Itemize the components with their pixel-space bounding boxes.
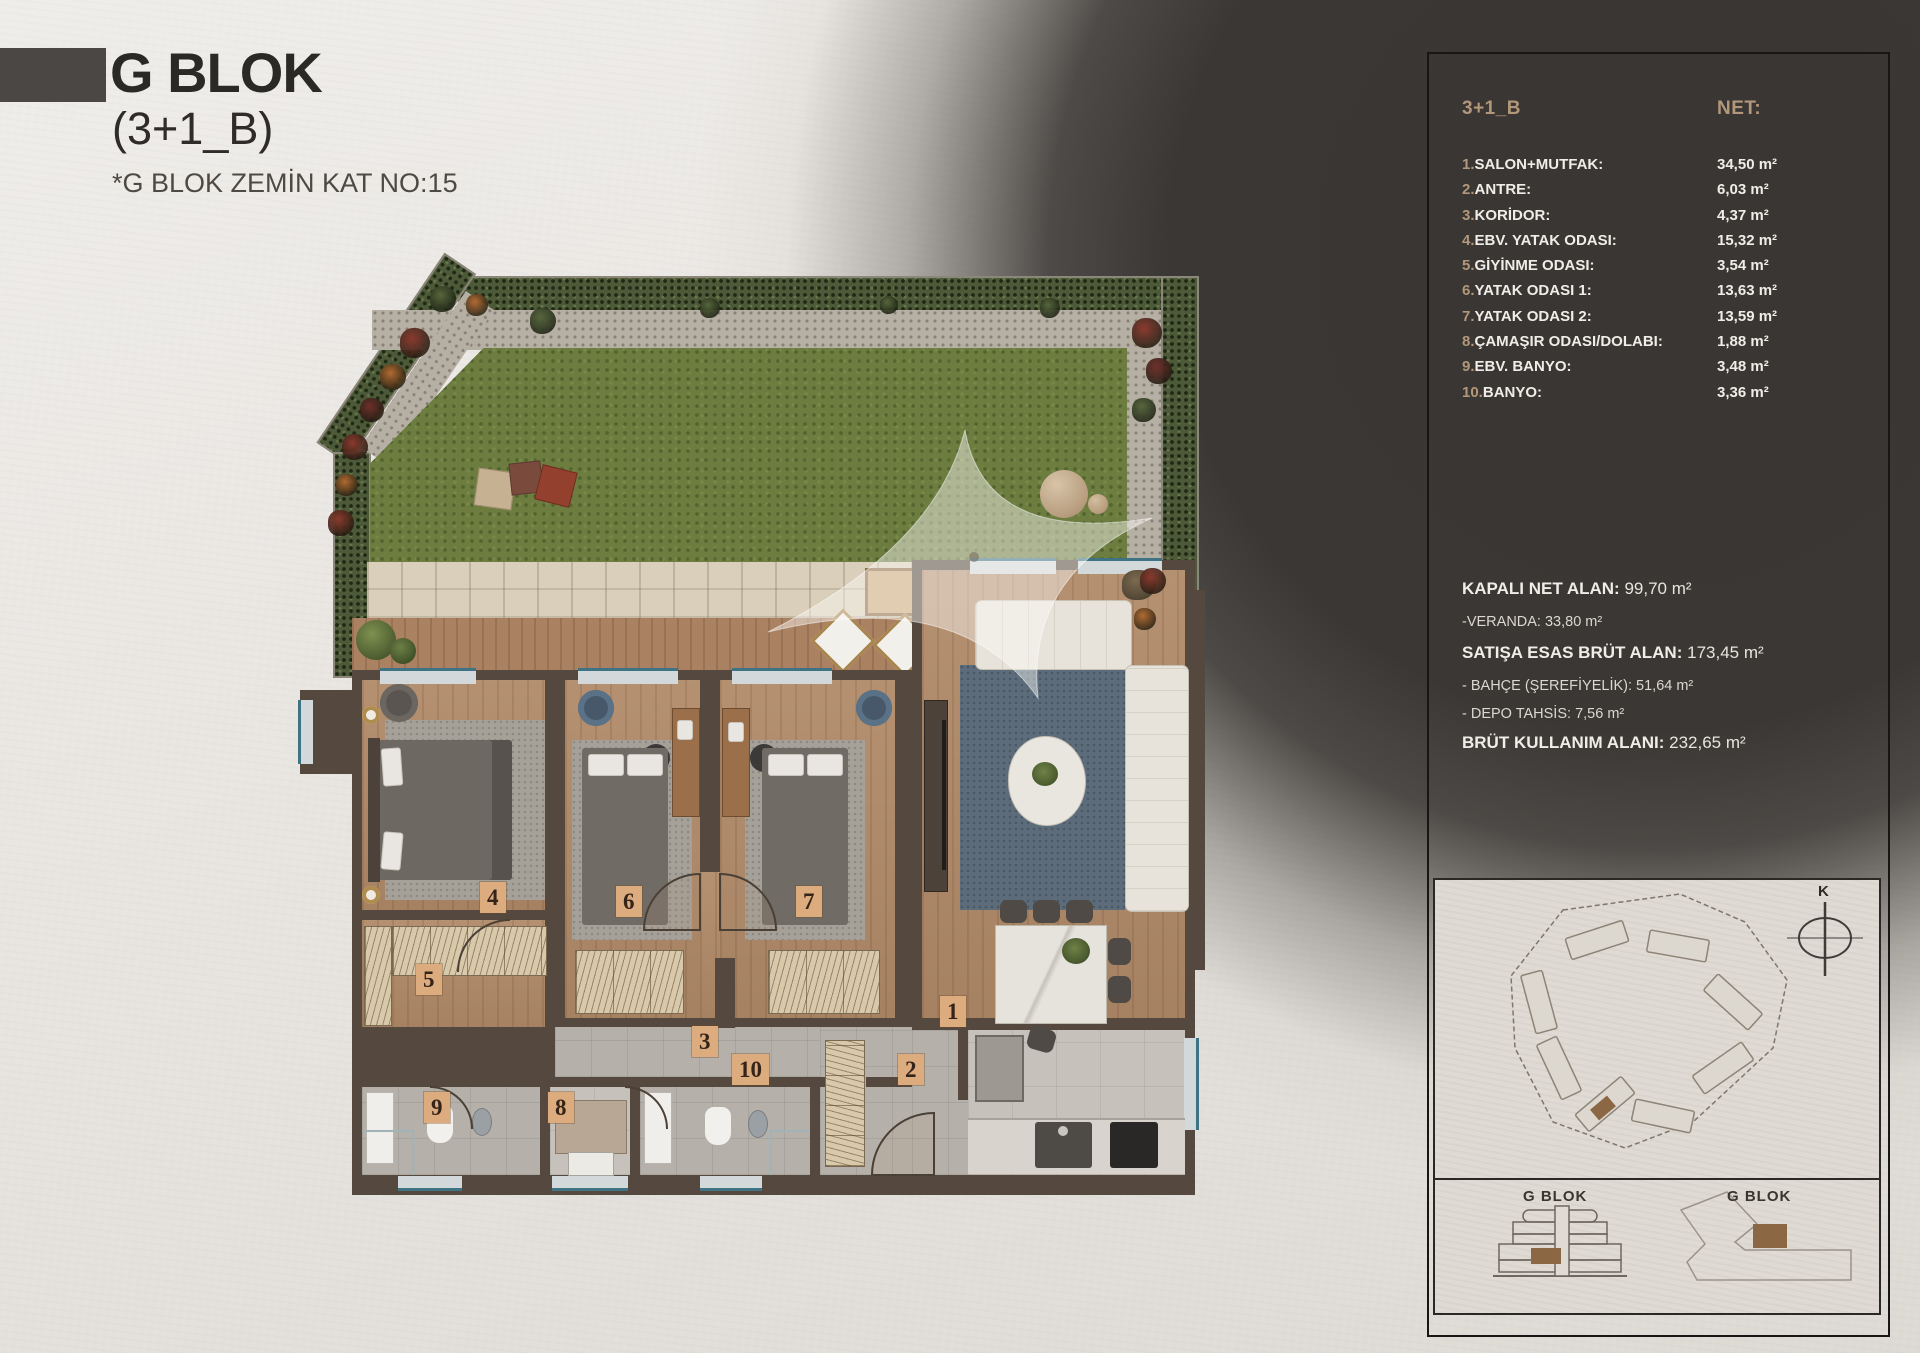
room-label: 2.ANTRE: bbox=[1462, 181, 1717, 206]
flower-blob bbox=[1134, 608, 1156, 630]
footprint-unit-marker bbox=[1753, 1224, 1787, 1248]
compass-north-label: K bbox=[1818, 883, 1829, 900]
room-number-chip: 5 bbox=[416, 964, 442, 995]
flower-blob bbox=[342, 434, 368, 460]
floor-plan: 46753121089 bbox=[280, 270, 1205, 1205]
elevation-diagram bbox=[1493, 1206, 1627, 1276]
floor-note: *G BLOK ZEMİN KAT NO:15 bbox=[112, 168, 458, 199]
room-area-row: 5.GİYİNME ODASI:3,54 m² bbox=[1462, 257, 1864, 282]
room-value: 1,88 m² bbox=[1717, 333, 1864, 358]
room-value: 15,32 m² bbox=[1717, 232, 1864, 257]
door-arcs bbox=[430, 874, 934, 1175]
plan-type-subtitle: (3+1_B) bbox=[112, 103, 273, 155]
compass-icon bbox=[1787, 902, 1863, 976]
flower-blob bbox=[336, 474, 358, 496]
room-area-row: 8.ÇAMAŞIR ODASI/DOLABI:1,88 m² bbox=[1462, 333, 1864, 358]
room-number-chip: 2 bbox=[898, 1054, 924, 1085]
summary-line: - DEPO TAHSİS: 7,56 m² bbox=[1462, 706, 1624, 722]
flower-blob bbox=[360, 398, 384, 422]
room-area-row: 10.BANYO:3,36 m² bbox=[1462, 384, 1864, 409]
block-diagrams-svg bbox=[1435, 1180, 1879, 1311]
flower-blob bbox=[466, 294, 488, 316]
room-area-row: 3.KORİDOR:4,37 m² bbox=[1462, 207, 1864, 232]
room-area-row: 9.EBV. BANYO:3,48 m² bbox=[1462, 358, 1864, 383]
room-value: 34,50 m² bbox=[1717, 156, 1864, 181]
flower-blob bbox=[1040, 298, 1060, 318]
info-panel: 3+1_B NET: 1.SALON+MUTFAK:34,50 m²2.ANTR… bbox=[1427, 52, 1890, 1337]
flower-blob bbox=[530, 308, 556, 334]
room-value: 3,36 m² bbox=[1717, 384, 1864, 409]
summary-line: KAPALI NET ALAN: 99,70 m² bbox=[1462, 579, 1692, 599]
site-strip: G BLOK G BLOK bbox=[1435, 1178, 1879, 1311]
site-map-svg: K bbox=[1435, 880, 1879, 1178]
room-label: 8.ÇAMAŞIR ODASI/DOLABI: bbox=[1462, 333, 1717, 358]
room-number-chip: 7 bbox=[796, 886, 822, 917]
room-value: 13,59 m² bbox=[1717, 308, 1864, 333]
flower-blob bbox=[430, 286, 456, 312]
flower-blob bbox=[1132, 318, 1162, 348]
net-label: NET: bbox=[1717, 98, 1860, 120]
room-label: 3.KORİDOR: bbox=[1462, 207, 1717, 232]
flower-blob bbox=[1146, 358, 1172, 384]
block-badge bbox=[0, 48, 106, 102]
summary-line: BRÜT KULLANIM ALANI: 232,65 m² bbox=[1462, 733, 1746, 753]
room-label: 7.YATAK ODASI 2: bbox=[1462, 308, 1717, 333]
room-number-chip: 4 bbox=[480, 882, 506, 913]
room-label: 5.GİYİNME ODASI: bbox=[1462, 257, 1717, 282]
room-number-chip: 3 bbox=[692, 1026, 718, 1057]
summary-line: -VERANDA: 33,80 m² bbox=[1462, 614, 1602, 630]
brochure-page: G BLOK (3+1_B) *G BLOK ZEMİN KAT NO:15 bbox=[0, 0, 1920, 1353]
shade-sail bbox=[768, 430, 1152, 698]
footprint-label: G BLOK bbox=[1727, 1188, 1791, 1205]
flower-blob bbox=[880, 296, 898, 314]
site-buildings bbox=[1521, 920, 1763, 1133]
summary-line: - BAHÇE (ŞEREFİYELİK): 51,64 m² bbox=[1462, 678, 1693, 694]
room-area-list: 1.SALON+MUTFAK:34,50 m²2.ANTRE:6,03 m²3.… bbox=[1462, 156, 1864, 409]
flower-blob bbox=[1132, 398, 1156, 422]
elevation-unit-marker bbox=[1531, 1248, 1561, 1264]
room-label: 6.YATAK ODASI 1: bbox=[1462, 282, 1717, 307]
room-area-row: 6.YATAK ODASI 1:13,63 m² bbox=[1462, 282, 1864, 307]
room-area-row: 7.YATAK ODASI 2:13,59 m² bbox=[1462, 308, 1864, 333]
room-label: 9.EBV. BANYO: bbox=[1462, 358, 1717, 383]
elevation-label: G BLOK bbox=[1523, 1188, 1587, 1205]
flower-blob bbox=[380, 364, 406, 390]
room-value: 13,63 m² bbox=[1717, 282, 1864, 307]
room-area-row: 2.ANTRE:6,03 m² bbox=[1462, 181, 1864, 206]
room-label: 1.SALON+MUTFAK: bbox=[1462, 156, 1717, 181]
room-label: 10.BANYO: bbox=[1462, 384, 1717, 409]
flower-blob bbox=[700, 298, 720, 318]
summary-line: SATIŞA ESAS BRÜT ALAN: 173,45 m² bbox=[1462, 643, 1764, 663]
room-value: 3,48 m² bbox=[1717, 358, 1864, 383]
room-value: 4,37 m² bbox=[1717, 207, 1864, 232]
room-number-chip: 1 bbox=[940, 996, 966, 1027]
room-number-chip: 9 bbox=[424, 1092, 450, 1123]
site-plan-box: K G BLOK G BLOK bbox=[1433, 878, 1881, 1315]
room-area-row: 1.SALON+MUTFAK:34,50 m² bbox=[1462, 156, 1864, 181]
room-number-chip: 10 bbox=[732, 1054, 769, 1085]
panel-header: 3+1_B NET: bbox=[1462, 98, 1860, 120]
flower-blob bbox=[400, 328, 430, 358]
room-value: 3,54 m² bbox=[1717, 257, 1864, 282]
room-number-chip: 8 bbox=[548, 1092, 574, 1123]
flower-blob bbox=[1140, 568, 1166, 594]
flower-blob bbox=[328, 510, 354, 536]
room-value: 6,03 m² bbox=[1717, 181, 1864, 206]
page-title: G BLOK bbox=[110, 40, 322, 105]
room-number-chip: 6 bbox=[616, 886, 642, 917]
sail-pole bbox=[969, 552, 979, 562]
room-area-row: 4.EBV. YATAK ODASI:15,32 m² bbox=[1462, 232, 1864, 257]
room-label: 4.EBV. YATAK ODASI: bbox=[1462, 232, 1717, 257]
plan-type-label: 3+1_B bbox=[1462, 98, 1717, 120]
